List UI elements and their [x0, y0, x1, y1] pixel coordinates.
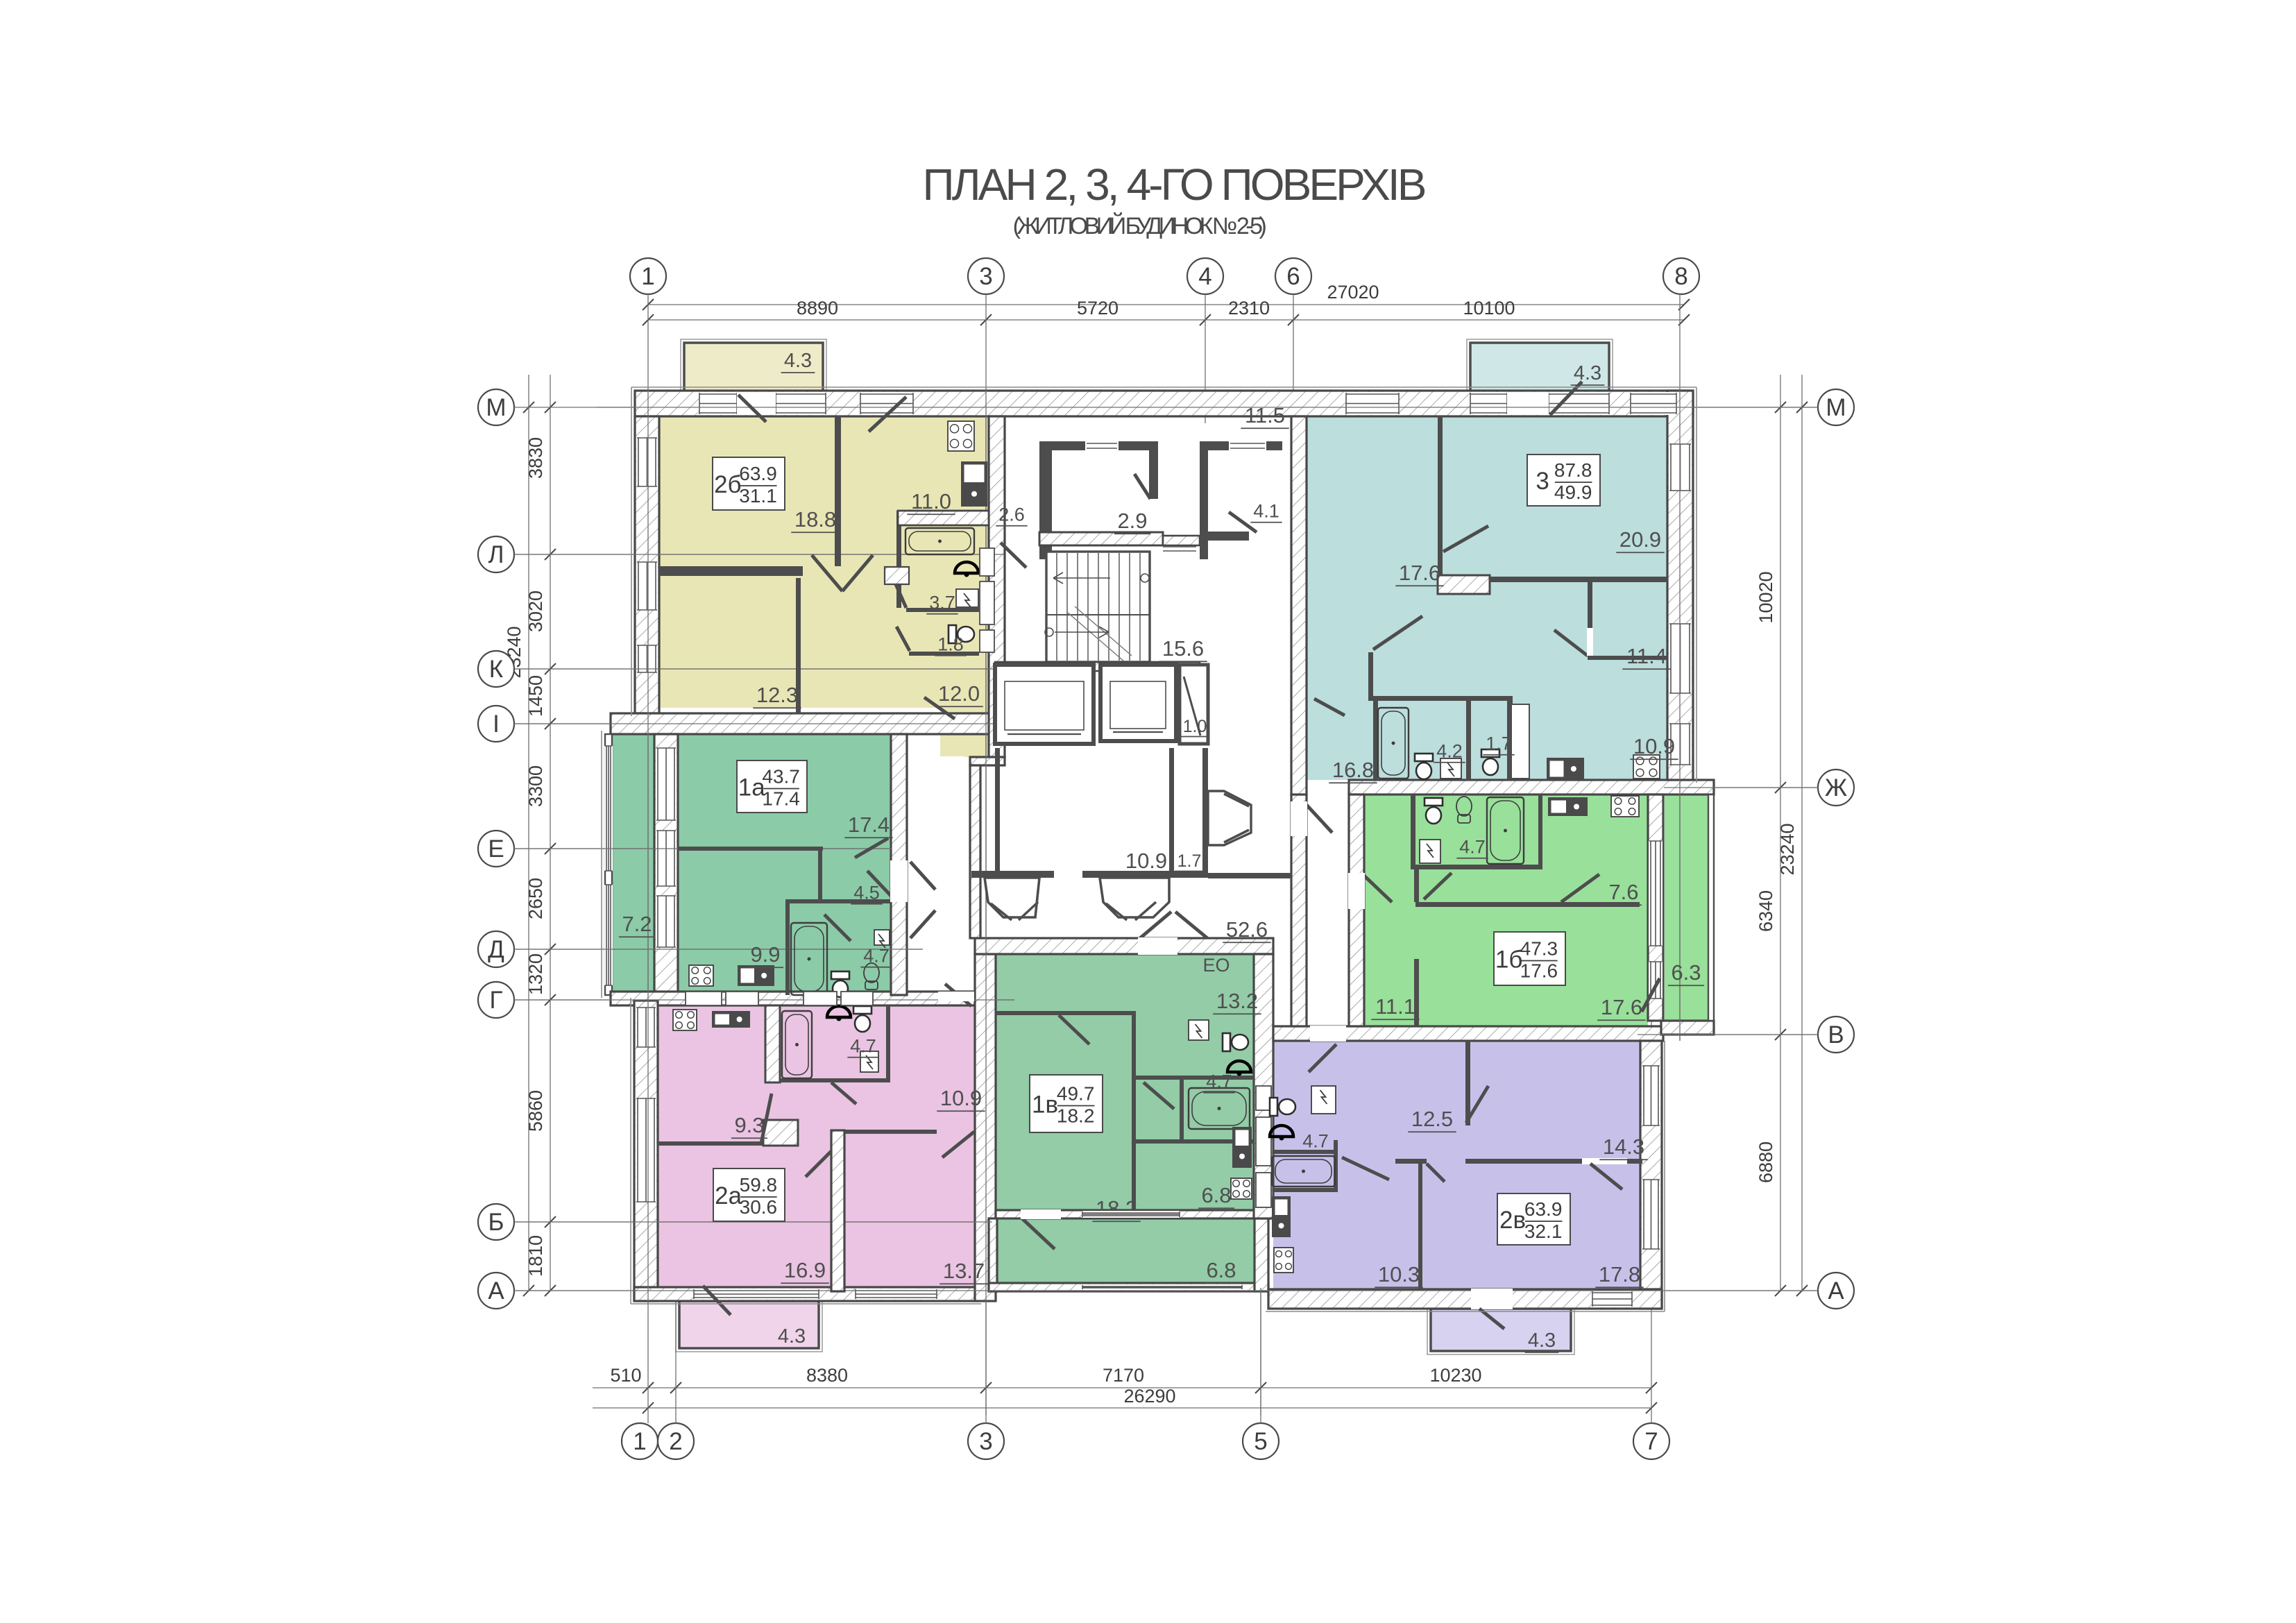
svg-text:І: І: [493, 711, 500, 738]
svg-text:8890: 8890: [797, 298, 838, 318]
svg-text:4.5: 4.5: [853, 882, 880, 903]
svg-text:63.9: 63.9: [739, 463, 777, 484]
svg-text:4.3: 4.3: [784, 350, 812, 372]
svg-text:12.5: 12.5: [1411, 1107, 1453, 1131]
svg-text:23240: 23240: [1777, 823, 1798, 875]
svg-text:2б: 2б: [714, 471, 742, 498]
svg-text:Е: Е: [488, 835, 504, 863]
svg-text:6.3: 6.3: [1671, 960, 1701, 985]
svg-text:6.8: 6.8: [1201, 1183, 1231, 1207]
svg-text:ЕО: ЕО: [1202, 955, 1230, 976]
svg-text:7170: 7170: [1103, 1365, 1144, 1386]
svg-text:4.1: 4.1: [1253, 500, 1279, 521]
svg-text:18.8: 18.8: [794, 507, 836, 532]
svg-text:4: 4: [1198, 263, 1211, 290]
svg-text:(ЖИТЛОВИЙ БУДИНОК № 2-5): (ЖИТЛОВИЙ БУДИНОК № 2-5): [1013, 213, 1266, 239]
svg-text:4.7: 4.7: [850, 1035, 876, 1056]
svg-text:11.4: 11.4: [1626, 644, 1667, 668]
svg-text:А: А: [1828, 1277, 1844, 1305]
svg-text:4.3: 4.3: [1574, 362, 1601, 384]
svg-text:Б: Б: [488, 1209, 504, 1236]
svg-text:М: М: [486, 394, 506, 421]
svg-text:17.6: 17.6: [1399, 561, 1440, 585]
svg-text:16.8: 16.8: [1332, 758, 1374, 782]
svg-text:9.3: 9.3: [734, 1113, 764, 1137]
svg-text:20.9: 20.9: [1619, 527, 1661, 552]
svg-text:11.5: 11.5: [1245, 403, 1285, 427]
svg-text:6880: 6880: [1755, 1141, 1776, 1183]
svg-text:В: В: [1828, 1021, 1844, 1048]
svg-text:1в: 1в: [1032, 1091, 1058, 1119]
svg-text:3: 3: [1536, 468, 1549, 495]
svg-text:1.7: 1.7: [1486, 733, 1512, 754]
svg-text:2310: 2310: [1228, 298, 1270, 318]
svg-text:3830: 3830: [525, 437, 546, 479]
svg-text:Г: Г: [490, 987, 503, 1014]
svg-text:10.9: 10.9: [1125, 849, 1167, 873]
svg-text:14.3: 14.3: [1603, 1135, 1644, 1159]
svg-text:26290: 26290: [1123, 1386, 1175, 1407]
svg-text:30.6: 30.6: [740, 1196, 778, 1218]
svg-text:8: 8: [1674, 263, 1687, 290]
svg-text:1.8: 1.8: [937, 634, 964, 654]
svg-text:17.4: 17.4: [762, 788, 800, 810]
svg-text:ПЛАН 2, 3, 4-ГО ПОВЕРХІВ: ПЛАН 2, 3, 4-ГО ПОВЕРХІВ: [922, 160, 1425, 210]
svg-text:10020: 10020: [1755, 571, 1776, 623]
svg-text:5: 5: [1254, 1428, 1267, 1455]
svg-text:Л: Л: [488, 541, 504, 568]
svg-text:4.7: 4.7: [1302, 1130, 1329, 1151]
svg-text:52.6: 52.6: [1226, 917, 1268, 942]
svg-text:12.3: 12.3: [756, 683, 798, 707]
svg-text:510: 510: [610, 1365, 641, 1386]
svg-text:2: 2: [669, 1428, 682, 1455]
svg-text:10.3: 10.3: [1378, 1262, 1420, 1286]
svg-text:17.6: 17.6: [1520, 960, 1558, 982]
svg-text:7: 7: [1644, 1428, 1658, 1455]
svg-text:4.3: 4.3: [1528, 1329, 1556, 1352]
svg-text:12.0: 12.0: [938, 681, 980, 706]
svg-text:17.4: 17.4: [848, 813, 890, 837]
svg-text:М: М: [1826, 394, 1846, 421]
svg-text:2.6: 2.6: [998, 504, 1025, 525]
svg-text:16.9: 16.9: [784, 1258, 826, 1282]
svg-text:2.9: 2.9: [1117, 509, 1147, 533]
svg-text:43.7: 43.7: [762, 766, 800, 788]
svg-text:1.7: 1.7: [1177, 851, 1202, 871]
svg-text:6: 6: [1286, 263, 1300, 290]
svg-text:1б: 1б: [1495, 946, 1523, 974]
svg-text:4.7: 4.7: [1206, 1071, 1232, 1091]
svg-text:2а: 2а: [715, 1182, 742, 1209]
svg-text:4.7: 4.7: [1459, 836, 1486, 857]
svg-text:17.8: 17.8: [1599, 1262, 1640, 1286]
svg-text:2650: 2650: [525, 878, 546, 919]
svg-text:59.8: 59.8: [740, 1174, 778, 1196]
svg-text:11.0: 11.0: [911, 489, 951, 513]
svg-text:5720: 5720: [1077, 298, 1119, 318]
svg-text:4.7: 4.7: [863, 945, 890, 966]
svg-text:10.9: 10.9: [940, 1086, 982, 1110]
svg-text:К: К: [489, 656, 504, 683]
svg-text:3: 3: [979, 1428, 992, 1455]
svg-text:13.2: 13.2: [1216, 989, 1258, 1013]
svg-text:63.9: 63.9: [1524, 1198, 1563, 1220]
svg-text:3.7: 3.7: [929, 592, 955, 613]
svg-text:49.7: 49.7: [1057, 1083, 1095, 1105]
svg-text:2в: 2в: [1499, 1207, 1526, 1234]
svg-text:27020: 27020: [1327, 282, 1379, 303]
svg-text:6.8: 6.8: [1206, 1258, 1236, 1282]
svg-text:31.1: 31.1: [739, 485, 777, 507]
svg-text:3: 3: [979, 263, 992, 290]
svg-text:6340: 6340: [1755, 890, 1776, 932]
svg-text:Ж: Ж: [1825, 774, 1847, 801]
svg-text:11.1: 11.1: [1375, 994, 1415, 1019]
svg-text:17.6: 17.6: [1601, 995, 1642, 1019]
svg-text:87.8: 87.8: [1554, 459, 1592, 481]
svg-text:7.2: 7.2: [622, 912, 652, 936]
svg-text:32.1: 32.1: [1524, 1221, 1563, 1242]
svg-text:4.3: 4.3: [778, 1325, 806, 1348]
svg-text:15.6: 15.6: [1162, 636, 1204, 661]
svg-text:1.0: 1.0: [1183, 717, 1207, 736]
svg-text:10230: 10230: [1429, 1365, 1481, 1386]
svg-text:А: А: [488, 1277, 504, 1305]
svg-text:1810: 1810: [525, 1235, 546, 1277]
svg-text:13.7: 13.7: [943, 1259, 985, 1283]
svg-text:Д: Д: [488, 936, 504, 963]
svg-text:1: 1: [633, 1428, 646, 1455]
svg-text:4.2: 4.2: [1436, 740, 1463, 761]
svg-text:18.2: 18.2: [1057, 1105, 1095, 1127]
svg-text:8380: 8380: [806, 1365, 848, 1386]
svg-text:5860: 5860: [525, 1090, 546, 1132]
svg-text:10100: 10100: [1463, 298, 1515, 318]
svg-text:49.9: 49.9: [1554, 482, 1592, 503]
svg-text:1320: 1320: [525, 953, 546, 995]
svg-text:9.9: 9.9: [750, 942, 780, 967]
svg-text:1а: 1а: [738, 774, 765, 801]
svg-text:10.9: 10.9: [1633, 734, 1675, 758]
svg-text:3300: 3300: [525, 765, 546, 807]
svg-text:47.3: 47.3: [1520, 938, 1558, 960]
svg-text:1: 1: [641, 263, 654, 290]
svg-text:7.6: 7.6: [1608, 880, 1638, 904]
svg-text:1450: 1450: [525, 675, 546, 717]
svg-text:3020: 3020: [525, 590, 546, 632]
